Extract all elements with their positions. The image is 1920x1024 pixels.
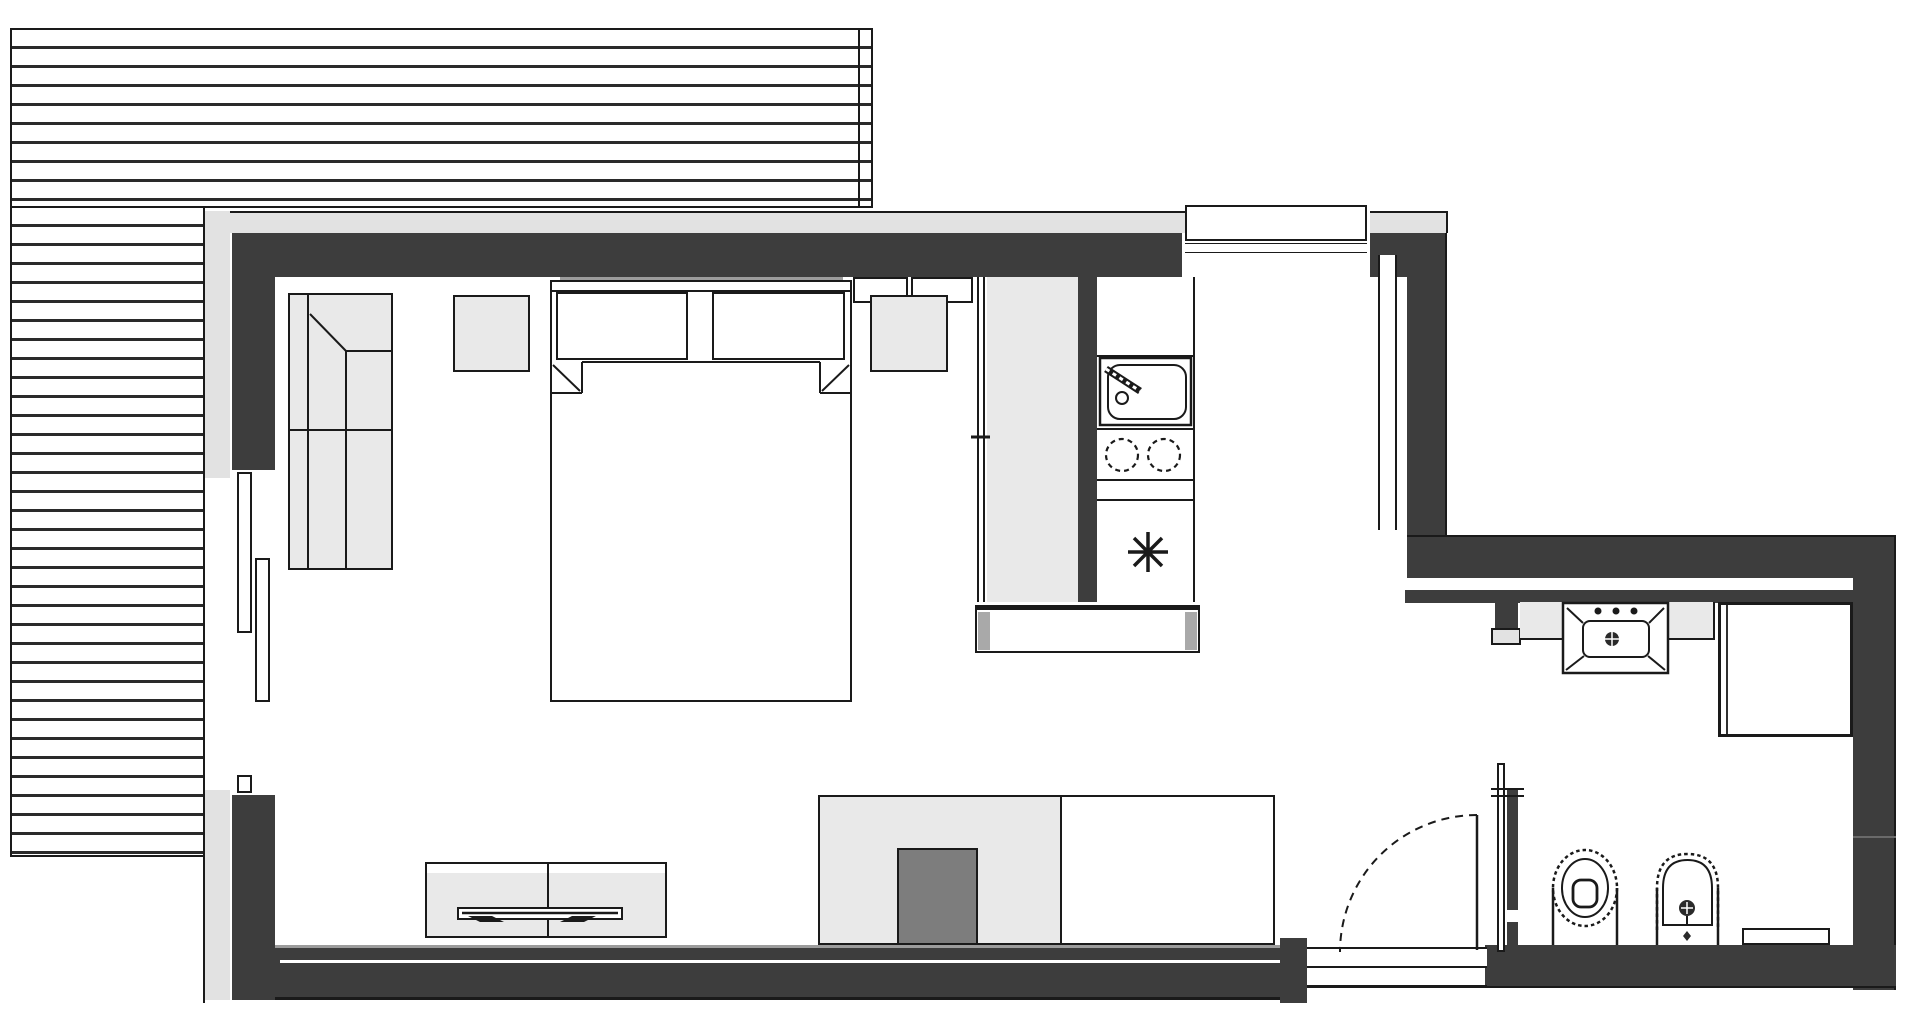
toilet-rim-inner <box>1562 859 1608 917</box>
kitchen-partition <box>987 277 1078 602</box>
wall-entry-jamb <box>1280 938 1307 1003</box>
sliding-door-panel-2 <box>255 558 270 702</box>
wall-right-outer <box>1853 578 1896 990</box>
kitchen-unit-separators <box>1097 356 1193 500</box>
star-symbol <box>1128 532 1168 572</box>
outer-band-left-upper <box>205 211 230 478</box>
bathroom-door-stub <box>1495 602 1518 628</box>
wall-kitchen-stub <box>1078 277 1097 602</box>
sliding-door-panel-1 <box>237 472 252 633</box>
bidet-faucet-cross <box>1681 902 1693 914</box>
outer-band-left-lower <box>205 790 230 1000</box>
desk-cap-left <box>978 612 990 650</box>
hall-duct-strip <box>1378 255 1397 530</box>
wall-right-seam <box>1853 836 1896 838</box>
burner-right <box>1148 439 1180 471</box>
entry-window <box>1185 205 1367 241</box>
terrace-deck-left <box>10 208 203 857</box>
wall-left-lower <box>232 795 275 1000</box>
tv-sideboard <box>425 862 667 938</box>
kitchen-column-edge <box>1193 277 1195 602</box>
bidet-faucet <box>1679 900 1695 916</box>
kitchen-counter-desk <box>975 605 1200 653</box>
entry-threshold <box>1307 947 1487 968</box>
bed-pillow-right <box>712 292 845 360</box>
toilet-seat-outer <box>1553 850 1617 926</box>
entry-threshold-outer-line <box>1307 985 1487 988</box>
kitchen-sink-outline <box>1100 358 1191 425</box>
wall-top <box>232 233 1182 277</box>
terrace-deck-top <box>10 28 873 208</box>
wall-bathroom-top <box>1407 535 1896 578</box>
entry-window-inner-frame <box>1185 243 1367 253</box>
wall-left-upper <box>232 277 275 470</box>
wall-bathroom-bottom <box>1485 945 1896 988</box>
kitchen-faucet-knob <box>1116 392 1128 404</box>
wall-bottom-seam <box>280 960 1280 963</box>
bathroom-pocket-door-gap <box>1507 910 1518 922</box>
bathroom-door-stub-cap <box>1491 628 1521 645</box>
wall-bottom <box>232 945 1307 1000</box>
desk-cap-right <box>1185 612 1197 650</box>
floor-plan <box>0 0 1920 1024</box>
outer-band-top <box>230 211 1185 233</box>
vanity-counter <box>1520 602 1715 640</box>
toilet-bowl-hole <box>1573 880 1597 907</box>
tv-sideboard-top-strip <box>427 864 665 873</box>
burner-left <box>1106 439 1138 471</box>
tv-sideboard-divider <box>547 862 549 938</box>
coffee-block <box>897 848 978 945</box>
bidet-outer <box>1657 854 1718 930</box>
bidet-drain-diamond <box>1683 931 1691 941</box>
deck-edge-line <box>858 28 860 208</box>
corner-sofa <box>288 293 393 570</box>
wall-right-upper <box>1407 233 1447 535</box>
kitchen-sink-basin <box>1108 365 1186 419</box>
bed-pillow-left <box>556 292 688 360</box>
bidet-base-sides <box>1657 888 1718 945</box>
nightstand-right <box>870 295 948 372</box>
kitchen-faucet <box>1106 369 1140 391</box>
toilet-base-sides <box>1553 888 1617 945</box>
sliding-door-jamb-notch <box>237 775 252 793</box>
bidet-inner <box>1663 860 1712 925</box>
kitchen-faucet-hatch <box>1106 369 1140 391</box>
entrance-door-swing-arc <box>1340 815 1477 952</box>
nightstand-left <box>453 295 530 372</box>
partition-edge-strip <box>977 277 985 602</box>
bathroom-pocket-door-wall <box>1507 788 1518 947</box>
pocket-door-panel <box>1497 763 1505 952</box>
bathroom-radiator <box>1742 928 1830 945</box>
shower-enclosure <box>1718 602 1853 737</box>
outer-band-top-right <box>1370 211 1448 233</box>
